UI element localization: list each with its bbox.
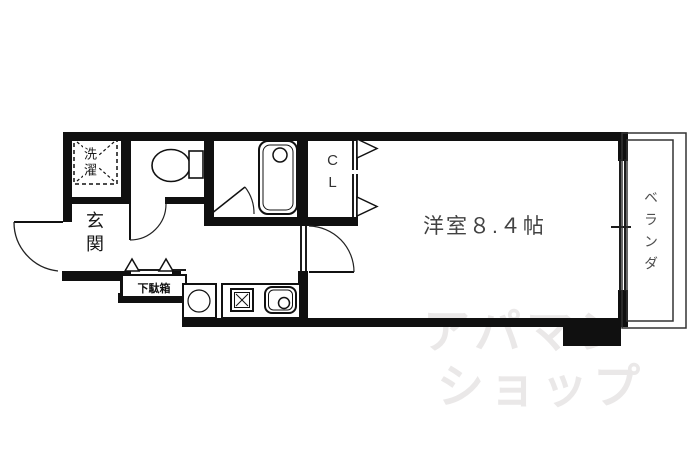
entrance-door-swing [14,222,58,271]
closet-label: CL [325,152,340,196]
toilet-tank-icon [189,151,203,178]
main-room-label: 洋室８.４帖 [423,210,546,240]
kitchen-sink-icon [265,287,296,313]
step-arrow-icon [125,259,139,271]
floor-plan: アパマン ショップ [0,0,690,460]
entrance-label: 玄関 [85,211,103,257]
shoebox-label: 下駄箱 [122,280,186,296]
toilet-icon [152,150,190,182]
veranda-label: ベランダ [644,190,658,278]
bathtub-drain-icon [273,148,287,162]
bathroom-door-swing [245,187,254,214]
closet-door-arrow-icon [357,139,377,158]
room-door-swing [309,226,354,272]
closet-door-arrow-icon [357,197,377,216]
laundry-label: 洗濯 [83,146,96,180]
step-arrow-icon [159,259,173,271]
toilet-door-swing [130,204,166,240]
bathroom-door-leaf [211,187,245,214]
